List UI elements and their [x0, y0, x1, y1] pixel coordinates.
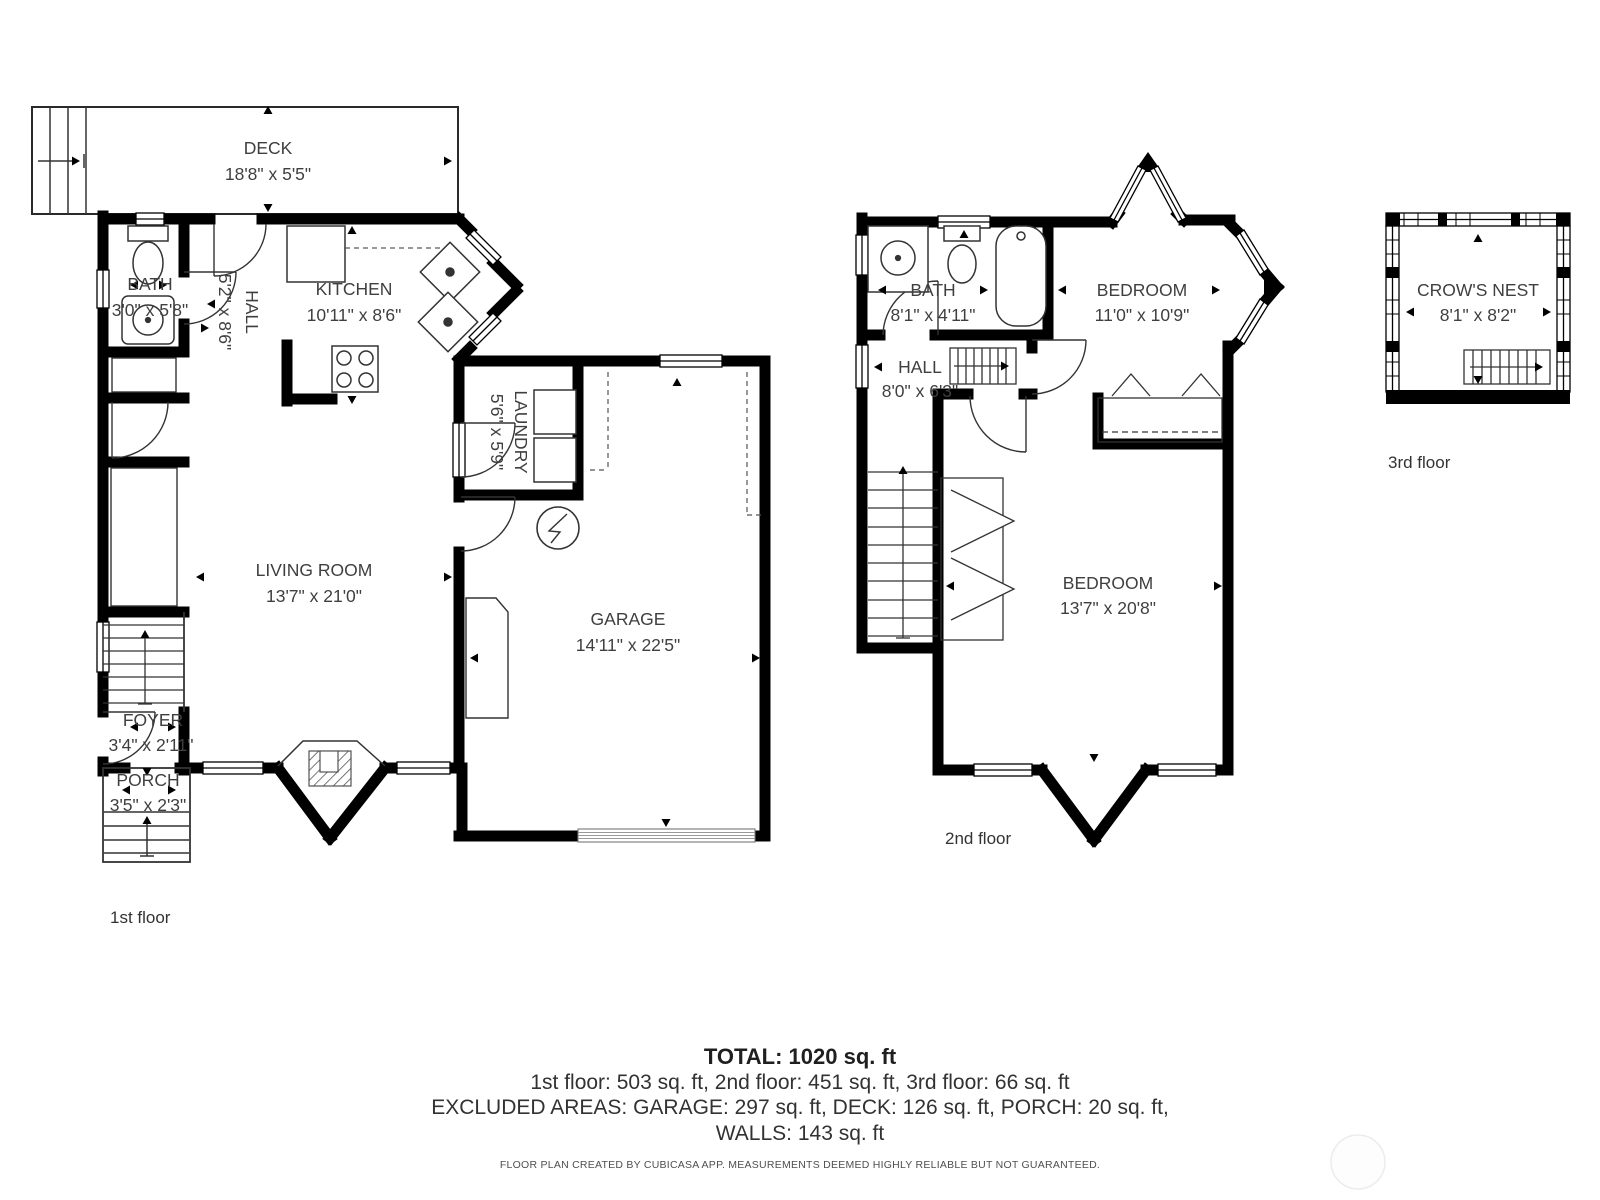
room-label-hall-1f: HALL: [242, 290, 262, 334]
bifold-doors-icon: [1112, 374, 1220, 396]
room-dims-porch: 3'5" x 2'3": [110, 795, 187, 815]
tub-faucet-icon: [1017, 232, 1025, 240]
room-label-bath-2f: BATH: [910, 280, 955, 300]
closet-2f: [1098, 374, 1222, 442]
wardrobe-2f: [941, 478, 1014, 640]
left-strip: [103, 358, 184, 712]
bathtub-icon: [996, 226, 1046, 326]
overhead-storage-dashed: [590, 372, 764, 515]
toilet-bowl-icon: [948, 245, 976, 283]
room-label-garage: GARAGE: [591, 609, 666, 629]
room-label-bedroom-top: BEDROOM: [1097, 280, 1187, 300]
tall-closet: [111, 468, 177, 606]
stair-direction-arrow-icon: [143, 816, 152, 824]
room-dims-kitchen: 10'11" x 8'6": [307, 305, 402, 325]
room-dims-living-room: 13'7" x 21'0": [266, 586, 362, 606]
room-dims-bedroom-top: 11'0" x 10'9": [1095, 305, 1190, 325]
stair-direction-arrow-icon: [141, 630, 150, 638]
room-label-crows-nest: CROW'S NEST: [1417, 280, 1539, 300]
floor1-plan: DECK 18'8" x 5'5" BATH 3'0" x 5'8" HALL …: [32, 106, 765, 927]
caption-1st-floor: 1st floor: [110, 908, 171, 927]
floor1-windows: [97, 213, 722, 774]
deck: [32, 107, 458, 214]
room-label-laundry: LAUNDRY: [511, 390, 531, 474]
toilet-icon: [128, 226, 168, 241]
room-dims-foyer: 3'4" x 2'11": [109, 735, 194, 755]
floor2-plan: BATH 8'1" x 4'11" BEDROOM 11'0" x 10'9" …: [856, 152, 1281, 848]
garage-door-icon: [578, 829, 755, 842]
washer-icon: [534, 390, 576, 434]
room-label-living-room: LIVING ROOM: [256, 560, 373, 580]
area-summary: TOTAL: 1020 sq. ft 1st floor: 503 sq. ft…: [0, 1044, 1600, 1146]
floor-areas-line: 1st floor: 503 sq. ft, 2nd floor: 451 sq…: [0, 1070, 1600, 1096]
laundry-fixtures: [534, 390, 576, 482]
room-dims-hall-1f: 5'2" x 8'6": [215, 274, 235, 351]
caption-3rd-floor: 3rd floor: [1388, 453, 1451, 472]
room-dims-bath-2f: 8'1" x 4'11": [891, 305, 976, 325]
stair-direction-arrow-icon: [1001, 362, 1009, 371]
floor3-plan: CROW'S NEST 8'1" x 8'2" 3rd floor: [1386, 213, 1570, 472]
closet-shelf: [112, 358, 176, 392]
floor-plan-drawing: DECK 18'8" x 5'5" BATH 3'0" x 5'8" HALL …: [0, 0, 1600, 1200]
fridge-icon: [287, 226, 345, 282]
garage-extras: [466, 372, 764, 842]
bay-window-1f: [278, 741, 385, 786]
room-dims-hall-2f: 8'0" x 6'3": [882, 381, 959, 401]
stairs-2f: [868, 468, 938, 638]
room-label-deck: DECK: [244, 138, 293, 158]
excluded-areas-line: EXCLUDED AREAS: GARAGE: 297 sq. ft, DECK…: [0, 1095, 1600, 1121]
room-dims-bedroom-main: 13'7" x 20'8": [1060, 598, 1156, 618]
room-dims-garage: 14'11" x 22'5": [576, 635, 680, 655]
floor-plan-page: DECK 18'8" x 5'5" BATH 3'0" x 5'8" HALL …: [0, 0, 1600, 1200]
dryer-icon: [534, 438, 576, 482]
stair-direction-arrow-icon: [1535, 363, 1543, 372]
crows-nest-bottom-wall: [1386, 390, 1570, 404]
water-heater-icon: [537, 507, 579, 549]
room-dims-laundry: 5'6" x 5'9": [487, 394, 507, 471]
room-label-bath-1f: BATH: [127, 274, 172, 294]
caption-2nd-floor: 2nd floor: [945, 829, 1011, 848]
walls-area-line: WALLS: 143 sq. ft: [0, 1121, 1600, 1147]
footer-disclaimer: FLOOR PLAN CREATED BY CUBICASA APP. MEAS…: [0, 1159, 1600, 1171]
room-label-kitchen: KITCHEN: [316, 279, 393, 299]
room-label-porch: PORCH: [116, 770, 179, 790]
floor1-labels: DECK 18'8" x 5'5" BATH 3'0" x 5'8" HALL …: [109, 138, 681, 927]
room-dims-deck: 18'8" x 5'5": [225, 164, 311, 184]
wardrobe-doors-icon: [951, 490, 1014, 620]
stair-direction-arrow-icon: [899, 466, 908, 474]
room-label-foyer: FOYER: [123, 710, 183, 730]
room-label-hall-2f: HALL: [898, 357, 942, 377]
toilet-icon: [944, 226, 980, 241]
total-area-line: TOTAL: 1020 sq. ft: [0, 1044, 1600, 1070]
room-label-bedroom-main: BEDROOM: [1063, 573, 1153, 593]
room-dims-bath-1f: 3'0" x 5'8": [112, 300, 189, 320]
room-dims-crows-nest: 8'1" x 8'2": [1440, 305, 1517, 325]
floor2-labels: BATH 8'1" x 4'11" BEDROOM 11'0" x 10'9" …: [882, 280, 1190, 848]
